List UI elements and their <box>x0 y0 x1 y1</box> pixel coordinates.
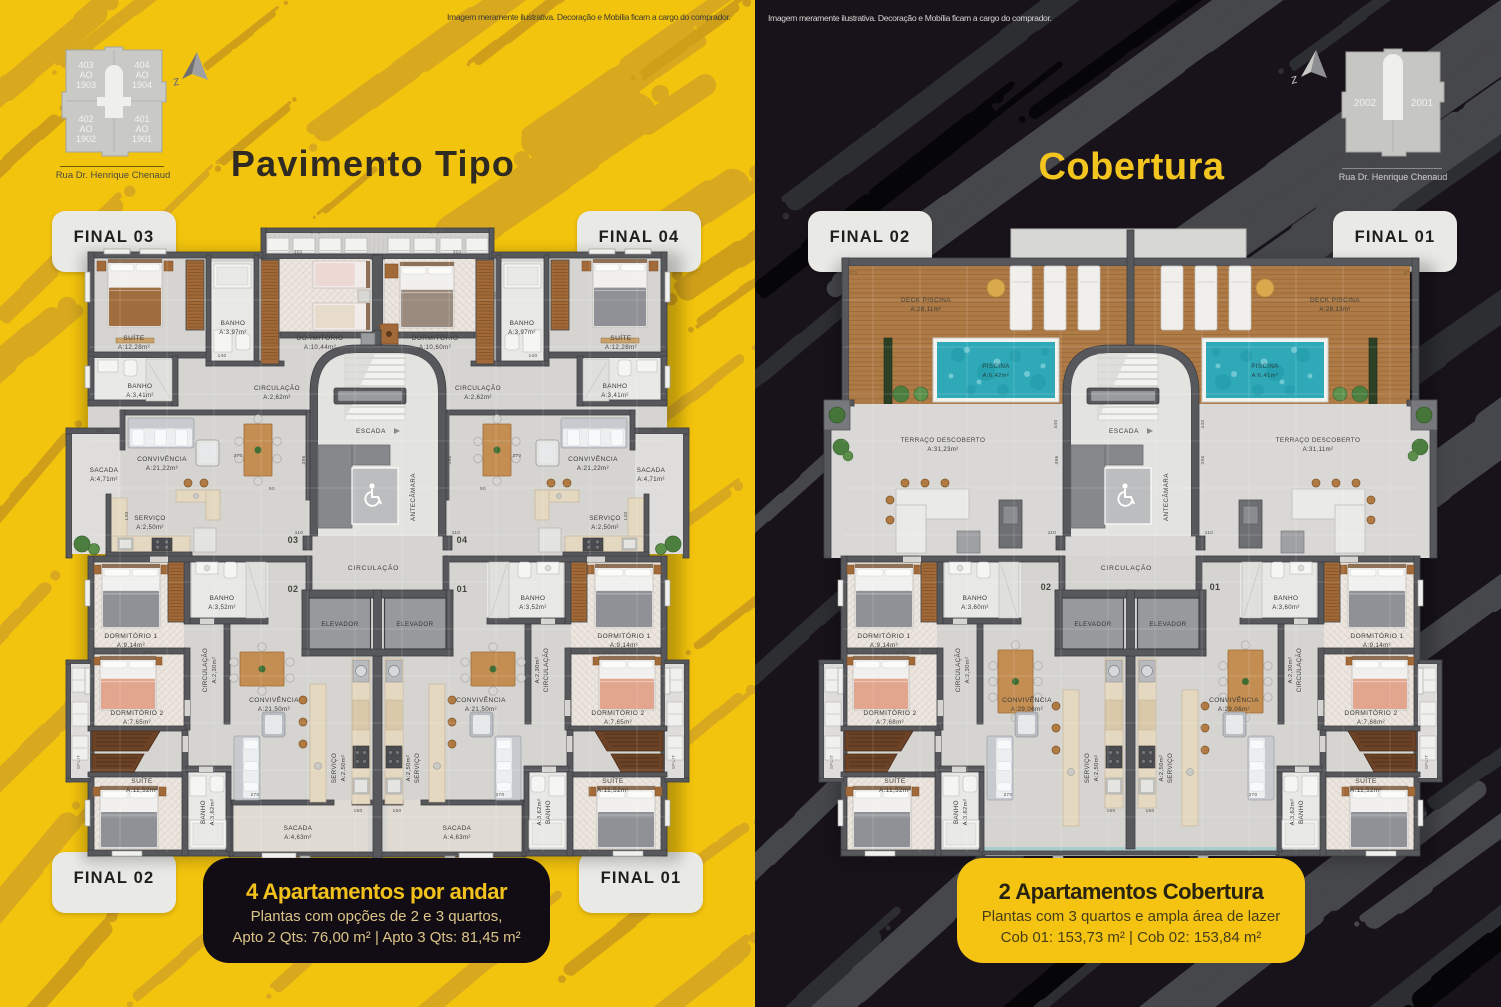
svg-text:160: 160 <box>1146 808 1155 813</box>
svg-text:870: 870 <box>849 270 858 275</box>
svg-text:SPLIT: SPLIT <box>311 230 326 235</box>
svg-text:250: 250 <box>96 428 105 433</box>
svg-text:BANHO: BANHO <box>521 595 546 602</box>
svg-text:ESCADA: ESCADA <box>1109 428 1139 435</box>
svg-text:SUÍTE: SUÍTE <box>610 333 632 342</box>
svg-text:A:9,14m²: A:9,14m² <box>870 642 898 649</box>
svg-text:DORMITÓRIO: DORMITÓRIO <box>412 333 459 342</box>
svg-text:315: 315 <box>1356 650 1365 655</box>
svg-text:A:2,50m²: A:2,50m² <box>1159 755 1165 782</box>
svg-text:A:3,62m²: A:3,62m² <box>1290 799 1296 826</box>
svg-text:396: 396 <box>1200 456 1205 465</box>
svg-text:270: 270 <box>496 792 505 797</box>
svg-text:SUÍTE: SUÍTE <box>131 776 153 785</box>
svg-text:CIRCULAÇÃO: CIRCULAÇÃO <box>348 563 399 572</box>
svg-text:A:29,06m²: A:29,06m² <box>1011 706 1043 713</box>
svg-text:396: 396 <box>1054 456 1059 465</box>
svg-text:ELEVADOR: ELEVADOR <box>1074 621 1111 628</box>
svg-text:02: 02 <box>1041 582 1052 592</box>
svg-text:DECK PISCINA: DECK PISCINA <box>1310 297 1360 304</box>
svg-text:370: 370 <box>513 453 522 458</box>
svg-text:A:3,97m²: A:3,97m² <box>219 330 247 336</box>
svg-text:BANHO: BANHO <box>1274 595 1299 602</box>
svg-text:90: 90 <box>480 486 486 491</box>
svg-text:DECK PISCINA: DECK PISCINA <box>901 297 951 304</box>
svg-text:DORMITÓRIO 1: DORMITÓRIO 1 <box>1350 631 1403 640</box>
svg-text:SERVIÇO: SERVIÇO <box>1084 753 1091 784</box>
svg-text:A:3,97m²: A:3,97m² <box>508 330 536 336</box>
svg-text:SERVIÇO: SERVIÇO <box>134 515 165 522</box>
svg-text:BANHO: BANHO <box>128 383 153 390</box>
svg-text:A:21,22m²: A:21,22m² <box>577 465 609 472</box>
svg-text:SUÍTE: SUÍTE <box>884 776 906 785</box>
svg-text:A:2,30m²: A:2,30m² <box>535 657 541 684</box>
svg-text:140: 140 <box>529 353 538 358</box>
svg-text:140: 140 <box>218 353 227 358</box>
svg-text:440: 440 <box>1053 420 1058 429</box>
svg-text:CONVIVÊNCIA: CONVIVÊNCIA <box>137 454 187 463</box>
svg-text:SUÍTE: SUÍTE <box>602 776 624 785</box>
svg-text:A:3,60m²: A:3,60m² <box>1272 605 1300 611</box>
svg-text:SUÍTE: SUÍTE <box>1355 776 1377 785</box>
svg-text:03: 03 <box>288 535 299 545</box>
svg-text:CONVIVÊNCIA: CONVIVÊNCIA <box>456 695 506 704</box>
svg-text:CIRCULAÇÃO: CIRCULAÇÃO <box>202 648 209 693</box>
svg-text:ESCADA: ESCADA <box>356 428 386 435</box>
svg-text:A:29,06m²: A:29,06m² <box>1218 706 1250 713</box>
svg-text:A:2,62m²: A:2,62m² <box>464 395 492 401</box>
svg-text:CONVIVÊNCIA: CONVIVÊNCIA <box>568 454 618 463</box>
svg-text:110: 110 <box>1048 530 1057 535</box>
svg-text:04: 04 <box>457 535 468 545</box>
svg-text:A:12,28m²: A:12,28m² <box>118 344 150 351</box>
svg-text:CIRCULAÇÃO: CIRCULAÇÃO <box>1101 563 1152 572</box>
svg-text:A:2,50m²: A:2,50m² <box>136 525 164 531</box>
svg-text:BANHO: BANHO <box>1298 800 1305 824</box>
svg-text:A:2,30m²: A:2,30m² <box>1288 657 1294 684</box>
svg-text:A:7,65m²: A:7,65m² <box>604 719 632 726</box>
svg-text:140: 140 <box>623 512 628 521</box>
svg-text:BANHO: BANHO <box>210 595 235 602</box>
svg-text:140: 140 <box>124 512 129 521</box>
svg-text:DORMITÓRIO 2: DORMITÓRIO 2 <box>591 708 644 717</box>
svg-text:396: 396 <box>301 456 306 465</box>
svg-text:350: 350 <box>294 250 303 255</box>
svg-text:A:7,68m²: A:7,68m² <box>1357 719 1385 726</box>
svg-text:SACADA: SACADA <box>90 467 119 474</box>
svg-text:315: 315 <box>897 650 906 655</box>
svg-text:SPLIT: SPLIT <box>76 755 81 770</box>
svg-text:A:2,30m²: A:2,30m² <box>965 657 971 684</box>
svg-text:SPLIT: SPLIT <box>1424 755 1429 770</box>
svg-text:350: 350 <box>453 250 462 255</box>
svg-text:870: 870 <box>1404 270 1413 275</box>
svg-text:01: 01 <box>457 584 468 594</box>
svg-text:A:7,68m²: A:7,68m² <box>876 719 904 726</box>
svg-text:A:2,50m²: A:2,50m² <box>341 755 347 782</box>
svg-text:A:3,60m²: A:3,60m² <box>961 605 989 611</box>
svg-text:A:28,13m²: A:28,13m² <box>1319 307 1350 313</box>
svg-text:315: 315 <box>603 650 612 655</box>
svg-text:CONVIVÊNCIA: CONVIVÊNCIA <box>1209 695 1259 704</box>
svg-text:01: 01 <box>1210 582 1221 592</box>
svg-text:A:3,62m²: A:3,62m² <box>963 799 969 826</box>
svg-text:110: 110 <box>452 530 461 535</box>
svg-text:A:6,42m²: A:6,42m² <box>983 373 1010 379</box>
svg-text:160: 160 <box>393 808 402 813</box>
svg-text:396: 396 <box>447 456 452 465</box>
svg-text:BANHO: BANHO <box>603 383 628 390</box>
svg-text:TERRAÇO DESCOBERTO: TERRAÇO DESCOBERTO <box>1276 437 1361 444</box>
svg-text:250: 250 <box>651 428 660 433</box>
svg-text:A:31,11m²: A:31,11m² <box>1303 447 1334 453</box>
svg-text:A:2,50m²: A:2,50m² <box>591 525 619 531</box>
svg-text:DORMITÓRIO 1: DORMITÓRIO 1 <box>857 631 910 640</box>
svg-text:110: 110 <box>1205 530 1214 535</box>
svg-text:ANTECÂMARA: ANTECÂMARA <box>1163 473 1170 521</box>
svg-text:CIRCULAÇÃO: CIRCULAÇÃO <box>955 648 962 693</box>
svg-text:CIRCULAÇÃO: CIRCULAÇÃO <box>543 648 550 693</box>
svg-text:440: 440 <box>1200 420 1205 429</box>
svg-text:BANHO: BANHO <box>545 800 552 824</box>
svg-text:A:9,14m²: A:9,14m² <box>117 642 145 649</box>
svg-text:315: 315 <box>144 650 153 655</box>
svg-text:A:9,14m²: A:9,14m² <box>1363 642 1391 649</box>
svg-text:BANHO: BANHO <box>200 800 207 824</box>
svg-text:90: 90 <box>269 486 275 491</box>
svg-text:A:11,52m²: A:11,52m² <box>1350 787 1382 794</box>
svg-text:SPLIT: SPLIT <box>430 230 445 235</box>
svg-text:BANHO: BANHO <box>963 595 988 602</box>
svg-text:270: 270 <box>1249 792 1258 797</box>
svg-text:290: 290 <box>493 292 498 301</box>
svg-text:370: 370 <box>234 453 243 458</box>
svg-text:A:11,52m²: A:11,52m² <box>126 787 158 794</box>
svg-text:A:4,71m²: A:4,71m² <box>637 477 665 483</box>
svg-text:DORMITÓRIO 2: DORMITÓRIO 2 <box>110 708 163 717</box>
svg-text:ELEVADOR: ELEVADOR <box>321 621 358 628</box>
svg-text:BANHO: BANHO <box>953 800 960 824</box>
svg-text:A:4,71m²: A:4,71m² <box>90 477 118 483</box>
svg-text:ANTECÂMARA: ANTECÂMARA <box>410 473 417 521</box>
svg-text:CONVIVÊNCIA: CONVIVÊNCIA <box>249 695 299 704</box>
svg-text:A:6,41m²: A:6,41m² <box>1252 373 1279 379</box>
svg-text:A:28,11m²: A:28,11m² <box>911 307 942 313</box>
svg-text:A:4,63m²: A:4,63m² <box>284 835 312 841</box>
svg-text:SERVIÇO: SERVIÇO <box>331 753 338 784</box>
svg-text:PISCINA: PISCINA <box>982 363 1010 370</box>
svg-text:A:7,65m²: A:7,65m² <box>123 719 151 726</box>
svg-text:A:9,14m²: A:9,14m² <box>610 642 638 649</box>
svg-text:A:4,63m²: A:4,63m² <box>443 835 471 841</box>
svg-text:A:21,50m²: A:21,50m² <box>465 706 497 713</box>
svg-text:BANHO: BANHO <box>510 320 535 327</box>
svg-text:SERVIÇO: SERVIÇO <box>1167 753 1174 784</box>
svg-text:DORMITÓRIO: DORMITÓRIO <box>297 333 344 342</box>
svg-text:A:21,22m²: A:21,22m² <box>146 465 178 472</box>
svg-text:A:31,23m²: A:31,23m² <box>927 447 958 453</box>
svg-text:02: 02 <box>288 584 299 594</box>
svg-text:A:12,28m²: A:12,28m² <box>605 344 637 351</box>
svg-text:290: 290 <box>254 292 259 301</box>
svg-text:SERVIÇO: SERVIÇO <box>414 753 421 784</box>
svg-text:DORMITÓRIO 1: DORMITÓRIO 1 <box>597 631 650 640</box>
svg-text:A:3,52m²: A:3,52m² <box>208 605 236 611</box>
svg-text:DORMITÓRIO 2: DORMITÓRIO 2 <box>1344 708 1397 717</box>
svg-text:SUÍTE: SUÍTE <box>123 333 145 342</box>
svg-text:TERRAÇO DESCOBERTO: TERRAÇO DESCOBERTO <box>901 437 986 444</box>
svg-text:CIRCULAÇÃO: CIRCULAÇÃO <box>455 383 501 392</box>
svg-text:DORMITÓRIO 1: DORMITÓRIO 1 <box>104 631 157 640</box>
svg-text:A:11,52m²: A:11,52m² <box>879 787 911 794</box>
svg-text:SACADA: SACADA <box>443 825 472 832</box>
svg-text:270: 270 <box>251 792 260 797</box>
svg-text:A:2,30m²: A:2,30m² <box>212 657 218 684</box>
svg-text:A:2,50m²: A:2,50m² <box>1094 755 1100 782</box>
svg-text:CIRCULAÇÃO: CIRCULAÇÃO <box>1296 648 1303 693</box>
svg-text:A:2,62m²: A:2,62m² <box>263 395 291 401</box>
svg-text:110: 110 <box>295 530 304 535</box>
svg-text:A:11,52m²: A:11,52m² <box>597 787 629 794</box>
svg-text:SPLIT: SPLIT <box>829 755 834 770</box>
svg-text:A:3,62m²: A:3,62m² <box>537 799 543 826</box>
svg-text:SERVIÇO: SERVIÇO <box>589 515 620 522</box>
svg-text:BANHO: BANHO <box>221 320 246 327</box>
svg-text:A:2,50m²: A:2,50m² <box>406 755 412 782</box>
svg-text:A:3,62m²: A:3,62m² <box>210 799 216 826</box>
svg-text:270: 270 <box>1004 792 1013 797</box>
svg-text:SPLIT: SPLIT <box>671 755 676 770</box>
svg-text:CONVIVÊNCIA: CONVIVÊNCIA <box>1002 695 1052 704</box>
svg-text:SACADA: SACADA <box>637 467 666 474</box>
svg-text:A:3,52m²: A:3,52m² <box>519 605 547 611</box>
svg-text:PISCINA: PISCINA <box>1251 363 1279 370</box>
svg-text:DORMITÓRIO 2: DORMITÓRIO 2 <box>863 708 916 717</box>
svg-text:A:21,50m²: A:21,50m² <box>258 706 290 713</box>
